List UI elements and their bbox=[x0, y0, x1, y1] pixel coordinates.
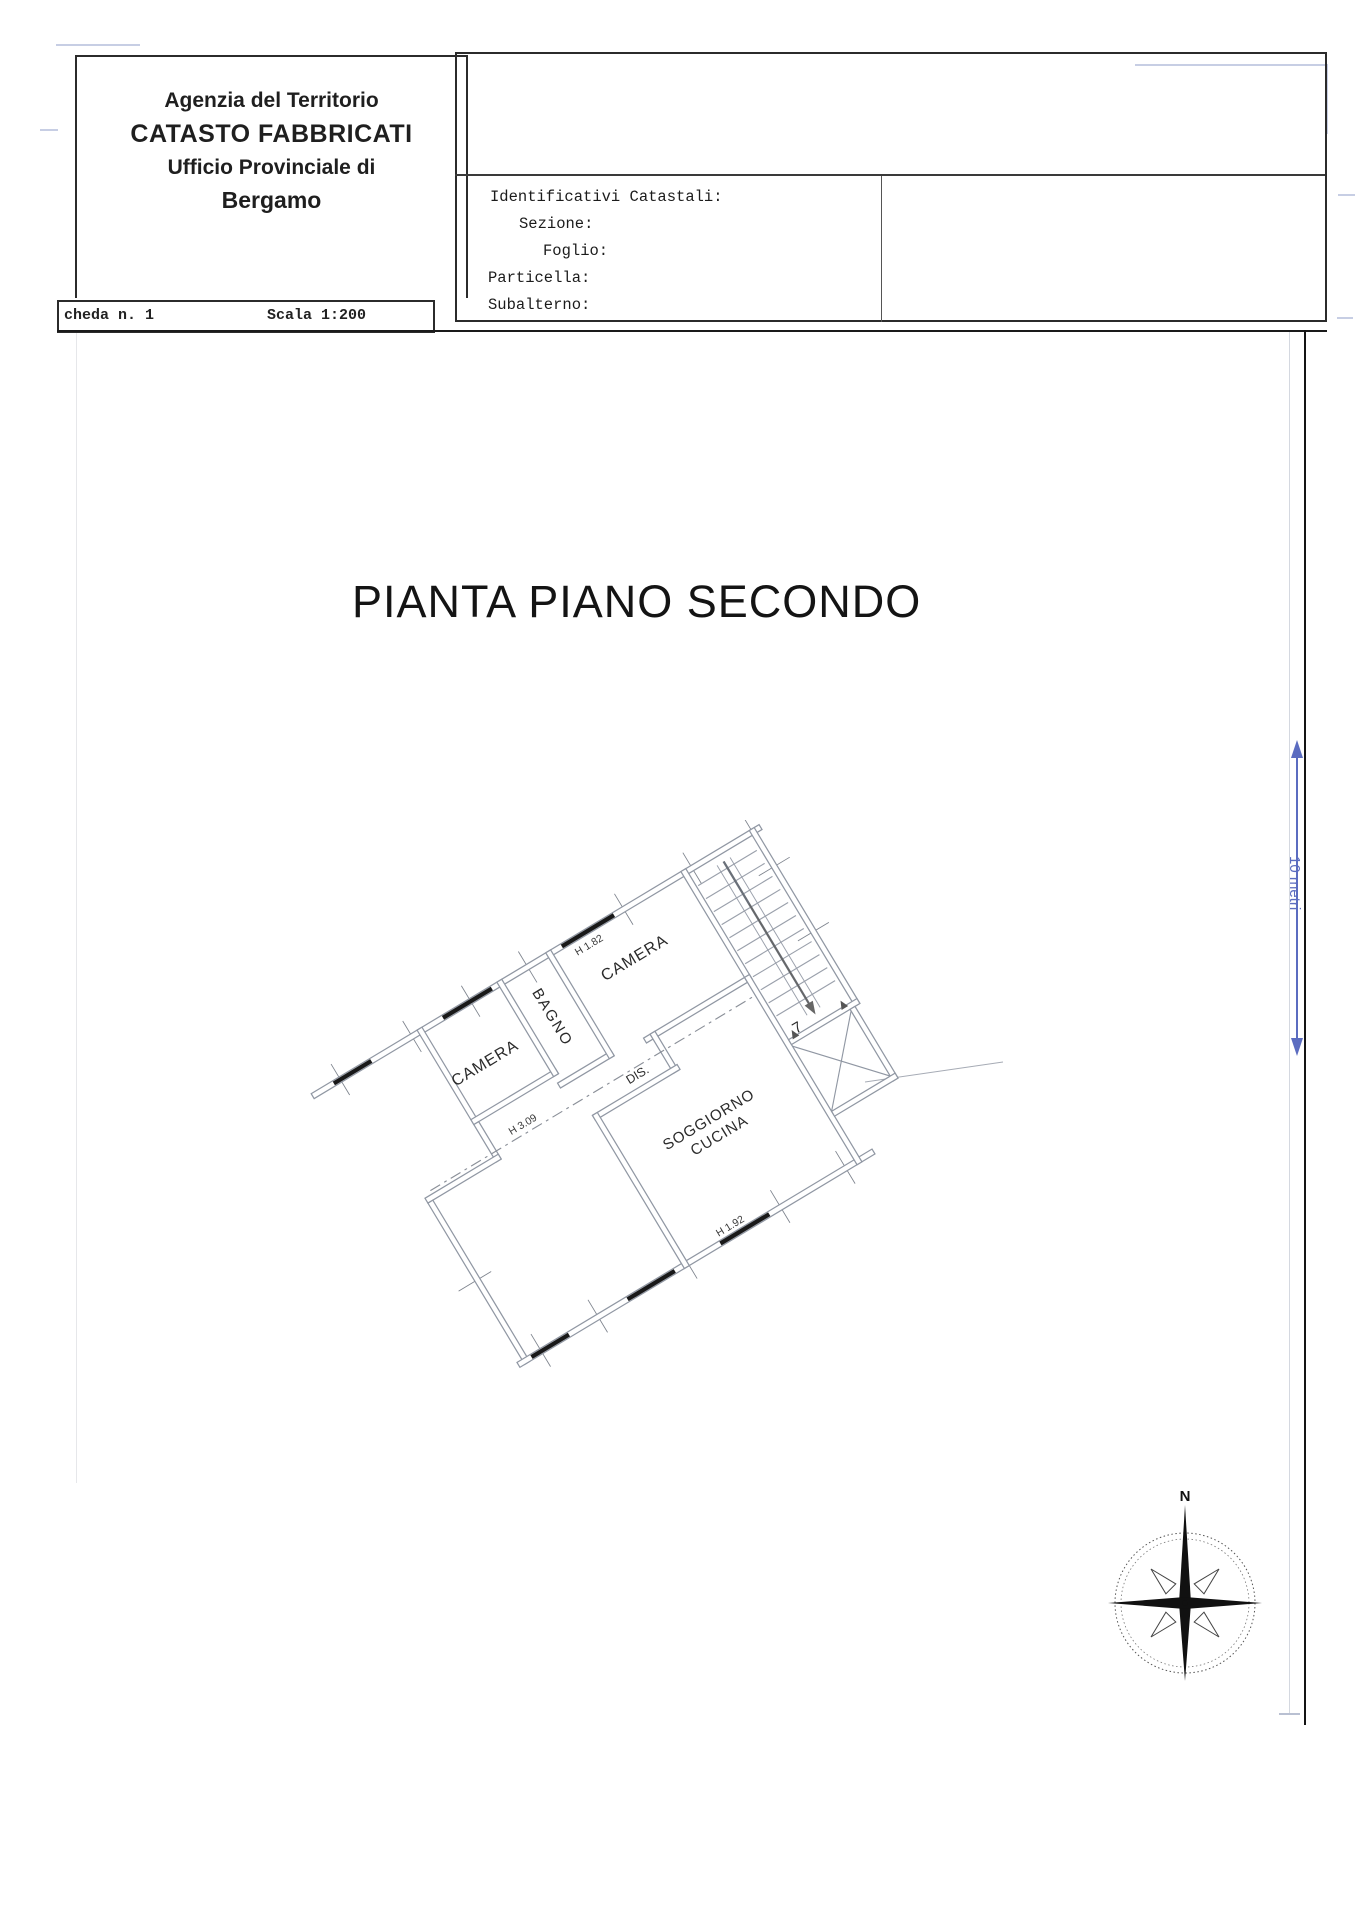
sheet-scale-strip: cheda n. 1 Scala 1:200 bbox=[57, 300, 435, 333]
field-sezione: Sezione: bbox=[457, 211, 877, 238]
scan-artifact-right-tick2 bbox=[1337, 317, 1353, 319]
scale-label: Scala 1:200 bbox=[267, 307, 366, 324]
frame-top-border bbox=[57, 330, 1327, 332]
scan-artifact-right-tick1 bbox=[1338, 194, 1355, 196]
agency-header-box: Agenzia del Territorio CATASTO FABBRICAT… bbox=[75, 55, 468, 298]
cadastral-sheet-page: Agenzia del Territorio CATASTO FABBRICAT… bbox=[0, 0, 1357, 1920]
height-label-middle: H 3.09 bbox=[507, 1113, 539, 1138]
compass-rose: N bbox=[1100, 1485, 1290, 1685]
catasto-fabbricati-title: CATASTO FABBRICATI bbox=[77, 120, 466, 149]
field-particella: Particella: bbox=[457, 265, 877, 292]
shaft-x-brace bbox=[792, 1011, 890, 1111]
room-label-camera-left: CAMERA bbox=[448, 1036, 521, 1090]
frame-right-tick bbox=[1279, 1713, 1300, 1715]
room-label-camera-right: CAMERA bbox=[598, 931, 671, 985]
catastal-title: Identificativi Catastali: bbox=[457, 184, 877, 211]
frame-left-faint-line bbox=[76, 333, 77, 1483]
catastal-identifiers-box: Identificativi Catastali: Sezione: Fogli… bbox=[455, 52, 1327, 322]
scale-bar: 10 metri bbox=[1276, 738, 1320, 1058]
field-foglio: Foglio: bbox=[457, 238, 877, 265]
plan-title: PIANTA PIANO SECONDO bbox=[352, 576, 921, 628]
scan-artifact-topleft bbox=[56, 44, 140, 46]
compass-needle-ns bbox=[1179, 1505, 1191, 1681]
compass-north-label: N bbox=[1180, 1488, 1191, 1505]
scale-bar-label: 10 metri bbox=[1286, 856, 1303, 910]
sheet-number-label: cheda n. 1 bbox=[64, 307, 154, 324]
field-subalterno: Subalterno: bbox=[457, 292, 877, 319]
floor-plan: CAMERA BAGNO CAMERA DIS. SOGGIORNO CUCIN… bbox=[305, 820, 1005, 1380]
scale-bar-arrow-top bbox=[1291, 740, 1303, 758]
compass-center bbox=[1182, 1600, 1188, 1606]
catastal-fields: Identificativi Catastali: Sezione: Fogli… bbox=[457, 184, 877, 319]
plan-walls bbox=[311, 825, 935, 1380]
scale-bar-arrow-bottom bbox=[1291, 1038, 1303, 1056]
catastal-box-divider-horizontal bbox=[455, 174, 1325, 176]
office-line: Ufficio Provinciale di bbox=[77, 156, 466, 180]
province-name: Bergamo bbox=[77, 187, 466, 214]
agency-name: Agenzia del Territorio bbox=[77, 89, 466, 113]
scan-artifact-leftmargin bbox=[40, 129, 58, 131]
catastal-box-divider-vertical bbox=[881, 176, 882, 322]
